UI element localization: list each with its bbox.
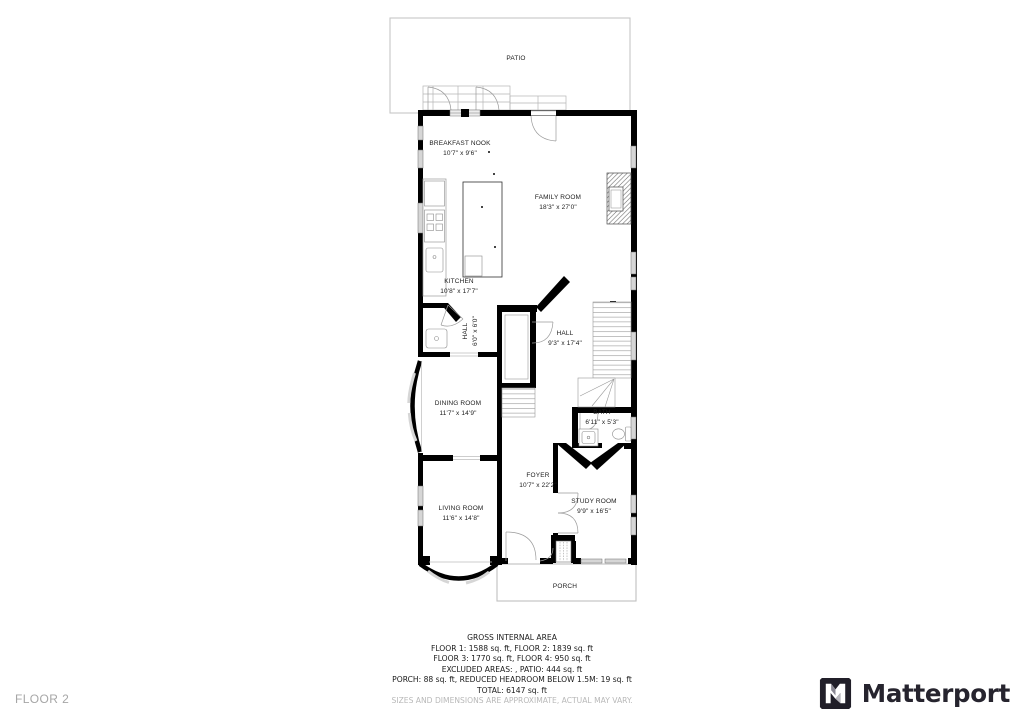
area-summary: GROSS INTERNAL AREA FLOOR 1: 1588 sq. ft…: [392, 633, 633, 707]
front-door: [556, 541, 571, 562]
room-label-porch: PORCH: [553, 582, 577, 592]
room-label-hall: HALL 9'3" x 17'4": [548, 329, 582, 349]
fridge: [425, 181, 445, 206]
summary-line: TOTAL: 6147 sq. ft: [392, 686, 633, 697]
room-label-kitchen: KITCHEN 10'8" x 17'7": [440, 277, 478, 297]
toilet: [626, 427, 632, 441]
summary-title: GROSS INTERNAL AREA: [392, 633, 633, 644]
summary-disclaimer: SIZES AND DIMENSIONS ARE APPROXIMATE, AC…: [392, 696, 633, 707]
room-label-hall-small: HALL 6'0" x 6'0": [461, 316, 481, 346]
room-label-bath: BATH 6'11" x 5'3": [585, 408, 618, 428]
stairs: [502, 302, 631, 417]
room-label-patio: PATIO: [506, 54, 525, 64]
matterport-logo: Matterport: [818, 676, 1010, 711]
summary-line: PORCH: 88 sq. ft, REDUCED HEADROOM BELOW…: [392, 675, 633, 686]
room-label-foyer: FOYER 10'7" x 22'2": [519, 471, 557, 491]
floorplan-page: PATIO BREAKFAST NOOK 10'7" x 9'6" FAMILY…: [0, 0, 1024, 724]
matterport-icon: [818, 676, 853, 711]
kitchen-fixtures: [423, 151, 502, 296]
room-label-living-room: LIVING ROOM 11'6" x 14'8": [439, 504, 484, 524]
kitchen-sink: [426, 248, 443, 272]
powder-room: [426, 329, 447, 348]
summary-line: FLOOR 3: 1770 sq. ft, FLOOR 4: 950 sq. f…: [392, 654, 633, 665]
matterport-wordmark: Matterport: [862, 679, 1010, 708]
room-label-family-room: FAMILY ROOM 18'3" x 27'0": [535, 193, 581, 213]
room-label-breakfast-nook: BREAKFAST NOOK 10'7" x 9'6": [429, 139, 490, 159]
summary-line: FLOOR 1: 1588 sq. ft, FLOOR 2: 1839 sq. …: [392, 644, 633, 655]
room-label-study-room: STUDY ROOM 9'9" x 16'5": [571, 497, 616, 517]
chase-closet: [505, 315, 528, 379]
room-label-dining-room: DINING ROOM 11'7" x 14'9": [435, 399, 481, 419]
floor-label: FLOOR 2: [15, 692, 69, 706]
summary-line: EXCLUDED AREAS: , PATIO: 444 sq. ft: [392, 665, 633, 676]
fireplace: [607, 173, 631, 224]
